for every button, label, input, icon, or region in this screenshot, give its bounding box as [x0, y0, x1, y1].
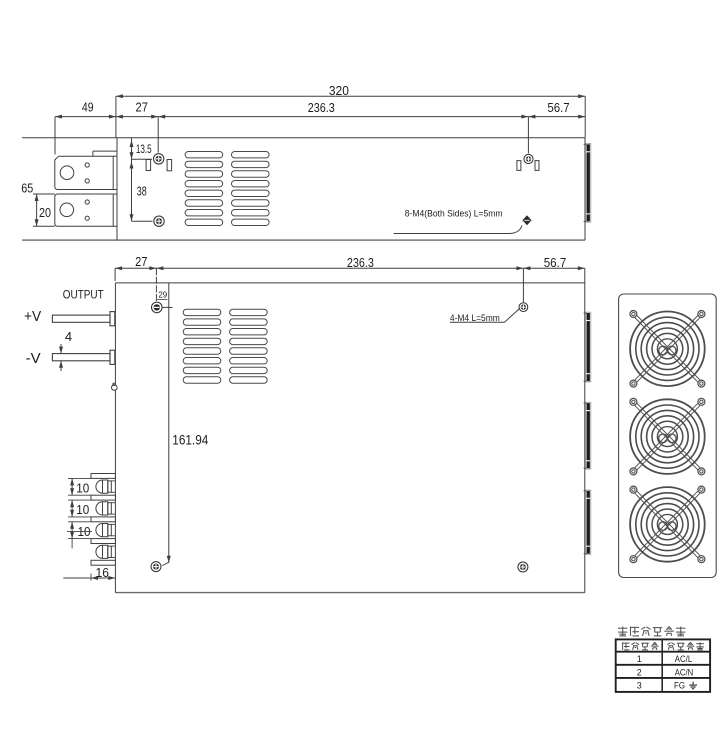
svg-text:13.5: 13.5	[136, 142, 152, 156]
svg-text:29: 29	[158, 290, 167, 299]
svg-text:4: 4	[65, 329, 72, 344]
svg-text:OUTPUT: OUTPUT	[63, 290, 104, 302]
svg-text:38: 38	[137, 183, 147, 198]
svg-text:2: 2	[637, 667, 642, 677]
svg-text:16: 16	[96, 565, 110, 580]
svg-text:8-M4(Both Sides) L=5mm: 8-M4(Both Sides) L=5mm	[405, 209, 503, 220]
svg-text:236.3: 236.3	[347, 255, 374, 270]
svg-text:+V: +V	[24, 309, 42, 325]
svg-text:3: 3	[637, 681, 642, 691]
svg-text:320: 320	[329, 83, 349, 98]
svg-text:-V: -V	[26, 351, 41, 367]
svg-text:27: 27	[136, 100, 148, 115]
svg-text:161.94: 161.94	[172, 432, 208, 447]
svg-text:49: 49	[82, 100, 94, 115]
svg-text:10: 10	[76, 481, 89, 496]
svg-text:56.7: 56.7	[547, 100, 569, 115]
svg-text:65: 65	[21, 182, 33, 196]
svg-text:AC/L: AC/L	[675, 654, 692, 664]
svg-text:56.7: 56.7	[544, 255, 567, 270]
svg-text:236.3: 236.3	[308, 100, 335, 115]
svg-text:AC/N: AC/N	[675, 667, 694, 677]
svg-text:FG: FG	[674, 681, 685, 691]
svg-text:20: 20	[39, 205, 51, 220]
svg-text:10: 10	[76, 502, 89, 517]
svg-text:1: 1	[637, 654, 642, 664]
svg-text:27: 27	[135, 254, 147, 269]
